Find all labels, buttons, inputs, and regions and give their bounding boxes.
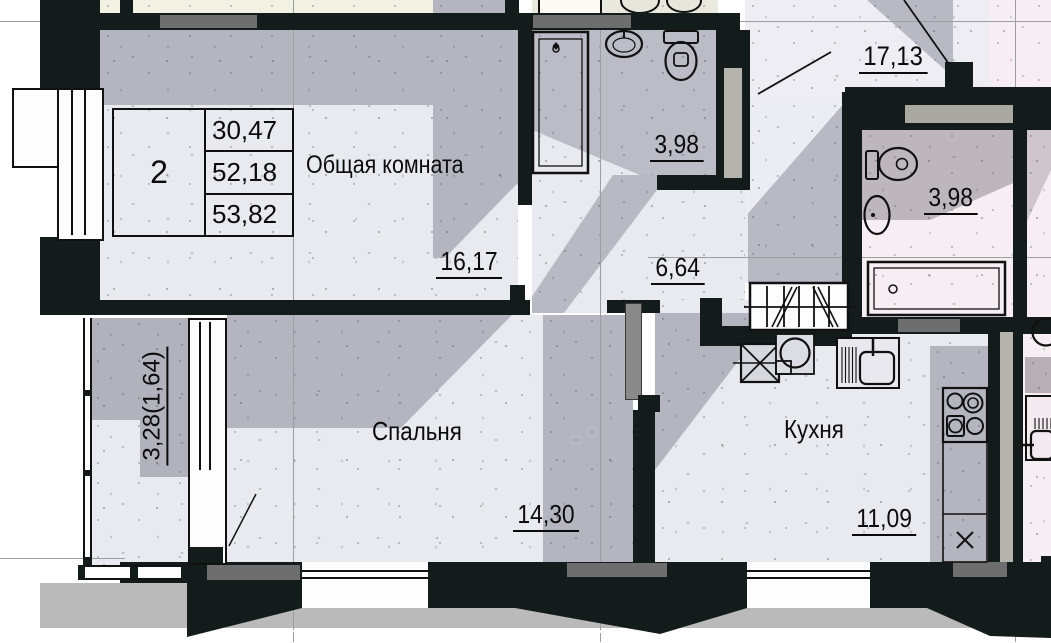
neighbor-kitchen-sink-icon xyxy=(1022,396,1051,564)
ground-wedge-1 xyxy=(515,608,747,634)
kitchen-duct-icon xyxy=(776,334,814,374)
kitchen-name: Кухня xyxy=(784,416,854,443)
neighbor-sink-icon xyxy=(865,196,890,234)
floor-plan: 2 30,47 52,18 53,82 Общая комната 16,17 … xyxy=(0,0,1051,643)
neighbor-kitchen-appliance-icon xyxy=(1033,319,1051,346)
ground-wedge-3 xyxy=(187,608,302,637)
kitchen-counter-icon xyxy=(943,442,987,562)
apartment-living-area: 30,47 xyxy=(206,110,292,150)
bathtub-icon xyxy=(533,32,588,173)
neighbor-bathroom-area: 3,98 xyxy=(924,184,985,215)
ground-wedge-2 xyxy=(927,608,1051,638)
apartment-total-area: 53,82 xyxy=(206,193,292,235)
sink-icon xyxy=(606,30,642,57)
apartment-info-table: 2 30,47 52,18 53,82 xyxy=(112,108,294,237)
bedroom-area: 14,30 xyxy=(513,501,588,532)
apartment-rooms-count: 2 xyxy=(114,110,206,235)
living-room-name: Общая комната xyxy=(306,152,489,178)
living-room-area: 16,17 xyxy=(436,248,511,279)
neighbor-room-area: 17,13 xyxy=(859,42,937,74)
apartment-area: 52,18 xyxy=(206,150,292,192)
kitchen-area: 11,09 xyxy=(852,505,925,536)
bathroom-area: 3,98 xyxy=(650,131,711,162)
bedroom-name: Спальня xyxy=(372,418,476,445)
neighbor-bathtub-icon xyxy=(868,262,1005,315)
neighbor-toilet-icon xyxy=(866,148,917,180)
kitchen-sink-icon xyxy=(837,338,899,388)
leader-line-1 xyxy=(758,52,831,94)
fixtures-layer xyxy=(0,0,1051,643)
balcony-area: 3,28(1,64) xyxy=(139,348,168,466)
balcony-door-swing-line xyxy=(229,494,256,546)
vent-hatch-icon xyxy=(744,283,856,330)
stove-icon xyxy=(943,388,987,442)
toilet-icon xyxy=(664,31,698,80)
corridor-area: 6,64 xyxy=(651,254,712,285)
